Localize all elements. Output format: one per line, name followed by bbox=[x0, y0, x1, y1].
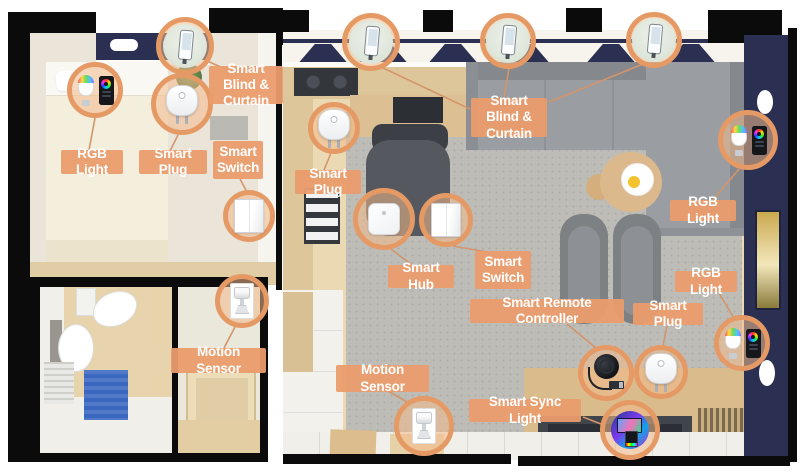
label-smart-switch-living: Smart Switch bbox=[475, 251, 531, 289]
label-smart-switch-bedroom: Smart Switch bbox=[213, 141, 263, 179]
label-smart-remote-controller: Smart Remote Controller bbox=[470, 299, 624, 323]
label-rgb-light-sofa: RGB Light bbox=[670, 200, 736, 221]
label-smart-plug-kitchen: Smart Plug bbox=[295, 170, 361, 194]
label-blind-curtain-bedroom: Smart Blind & Curtain bbox=[209, 66, 283, 104]
smart-home-floor-plan: Smart Blind & CurtainRGB LightSmart Plug… bbox=[0, 0, 800, 474]
label-blind-curtain-living: Smart Blind & Curtain bbox=[471, 98, 547, 137]
label-smart-plug-bedroom: Smart Plug bbox=[139, 150, 207, 174]
label-smart-sync-light: Smart Sync Light bbox=[469, 399, 581, 422]
label-motion-sensor-bathroom: Motion Sensor bbox=[171, 348, 266, 373]
label-rgb-light-wall: RGB Light bbox=[675, 271, 737, 292]
label-rgb-light-bedroom: RGB Light bbox=[61, 150, 123, 174]
label-smart-plug-living: Smart Plug bbox=[633, 303, 703, 325]
label-smart-hub: Smart Hub bbox=[388, 265, 454, 288]
annotation-labels: Smart Blind & CurtainRGB LightSmart Plug… bbox=[0, 0, 800, 474]
label-motion-sensor-living: Motion Sensor bbox=[336, 365, 429, 392]
